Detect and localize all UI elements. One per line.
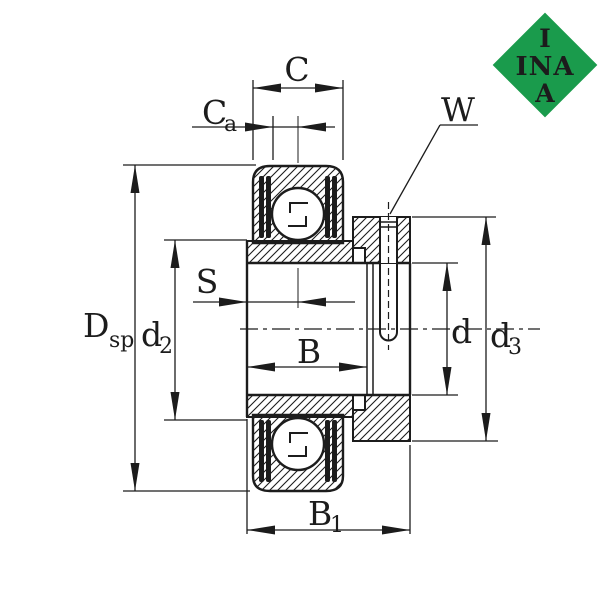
ball-bottom [272,418,324,470]
inner-ring-top-section [247,241,353,263]
label-d2-sub: 2 [159,334,173,359]
label-S: S [196,262,219,301]
ina-logo-line2: INA [515,52,574,82]
label-W: W [441,90,475,129]
ina-logo-line3: A [534,79,555,108]
label-d: d [451,312,472,351]
label-C: C [284,50,309,89]
label-B1: B [308,494,332,533]
label-Dsp: D [83,306,109,345]
ina-logo-line1: I [539,24,551,53]
set-screw [380,202,397,350]
ball-top [272,188,324,240]
label-B1-sub: 1 [330,513,344,538]
label-B: B [297,332,321,371]
inner-ring-bottom-section [247,395,353,417]
bearing-drawing-page: C C a W S B B 1 D sp d 2 d d 3 I INA A [0,0,600,600]
label-Ca-sub: a [224,112,237,137]
label-Dsp-sub: sp [109,328,134,353]
label-d3-sub: 3 [508,335,522,360]
locking-collar-bottom-section [353,395,410,441]
dimension-W [390,125,478,214]
technical-drawing: C C a W S B B 1 D sp d 2 d d 3 I INA A [0,0,600,600]
ina-logo: I INA A [493,13,598,118]
